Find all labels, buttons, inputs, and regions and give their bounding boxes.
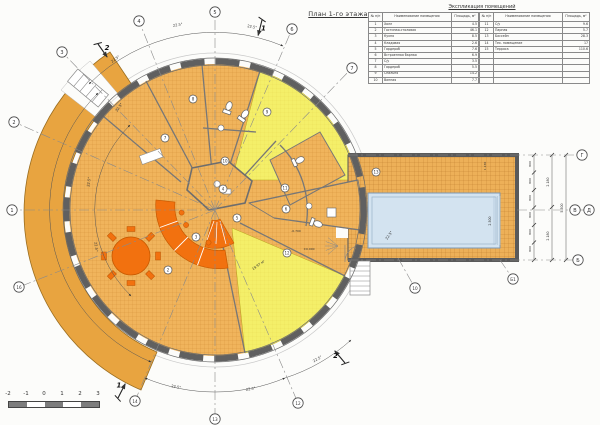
room-number: 5 <box>236 216 239 221</box>
dim-label: 22.5° <box>246 386 257 392</box>
scale-label: 1 <box>60 391 64 397</box>
axis-label: 4 <box>137 19 140 25</box>
schedule-cell: 10 <box>369 77 383 83</box>
axis-label: 13 <box>212 417 218 422</box>
axis-label: Г <box>580 153 583 159</box>
section-mark-number: 2 <box>105 44 110 52</box>
room-number: 4 <box>222 187 225 192</box>
scale-segment <box>45 402 63 407</box>
room-number: 3 <box>195 235 198 240</box>
schedule-header: № п/п <box>369 13 383 22</box>
axis-label: 14 <box>132 399 138 404</box>
dim-label: 1.130 <box>483 162 487 171</box>
axis-label: 16 <box>16 285 22 290</box>
table-row-empty <box>480 77 590 83</box>
dim-label: ±0.000 <box>303 247 314 251</box>
scale-label: -2 <box>5 391 10 397</box>
dim-label: 2.500 <box>488 216 492 225</box>
scale-segment <box>9 402 27 407</box>
axis-label: 12 <box>295 401 301 406</box>
section-mark-number: 2 <box>333 352 338 360</box>
schedule-header: Площадь, м² <box>452 13 479 22</box>
schedule-cell <box>494 77 563 83</box>
drawing-sheet: 12345671012131416ГВДББ1 2345678910111213… <box>0 0 600 425</box>
schedule-cell: 7.7 <box>452 77 479 83</box>
schedule-caption: Экспликация помещений <box>368 4 596 10</box>
axis-label: 6 <box>290 27 293 33</box>
section-mark-number: 1 <box>117 381 122 389</box>
room-number: 12 <box>284 251 290 256</box>
room-schedule: Экспликация помещений № п/пНаименование … <box>368 4 596 84</box>
room-number: 9 <box>266 110 269 115</box>
section-mark: 2 <box>329 348 349 369</box>
sink <box>218 125 224 131</box>
scale-bar-labels: -2-10123 <box>8 391 108 399</box>
scale-label: 0 <box>42 391 46 397</box>
room-number: 6 <box>285 207 288 212</box>
dim-label: -0.700 <box>291 229 301 233</box>
axis-label: Б1 <box>510 277 516 282</box>
dim-label: 800 <box>528 229 532 235</box>
schedule-header: Наименование помещения <box>383 13 452 22</box>
dim-label: 2.180 <box>546 177 550 186</box>
dim-label: 2.180 <box>546 231 550 240</box>
room-number: 10 <box>222 159 228 164</box>
axis-label: В <box>573 208 577 214</box>
schedule-table-right: № п/пНаименование помещенияПлощадь, м²11… <box>479 12 590 84</box>
scale-label: -1 <box>23 391 28 397</box>
scale-bar-segments <box>8 401 100 408</box>
schedule-header: Площадь, м² <box>563 13 590 22</box>
dim-label: 22.5° <box>171 384 182 390</box>
schedule-header: № п/п <box>480 13 494 22</box>
room-number: 7 <box>164 136 167 141</box>
scale-bar: -2-10123 <box>8 391 108 415</box>
room-number: 8 <box>192 97 195 102</box>
dim-label: 800 <box>528 195 532 201</box>
room-number: 2 <box>167 268 170 273</box>
dim-label: 800 <box>528 212 532 218</box>
scale-label: 2 <box>78 391 82 397</box>
dim-label: 5.500 <box>560 203 564 212</box>
schedule-table-left: № п/пНаименование помещенияПлощадь, м²1Х… <box>368 12 479 84</box>
schedule-cell: Ванная <box>383 77 452 83</box>
sink <box>306 203 312 209</box>
dim-label: 800 <box>528 246 532 252</box>
axis-label: 10 <box>412 286 418 291</box>
axis-label: 5 <box>213 10 216 16</box>
scale-segment <box>81 402 99 407</box>
room-number: 13 <box>373 170 379 175</box>
axis-label: 1 <box>10 208 13 214</box>
dim-label: 22.5° <box>173 22 184 28</box>
axis-label: Б <box>576 258 580 264</box>
axis-label: 3 <box>60 50 63 56</box>
room-number: 11 <box>282 186 288 191</box>
axis-label: 2 <box>12 120 15 126</box>
scale-segment <box>63 402 81 407</box>
washer <box>327 208 336 217</box>
axis-label: 7 <box>350 66 353 72</box>
axis-label: Д <box>587 208 591 214</box>
dim-label: 800 <box>528 178 532 184</box>
dim-label: 800 <box>528 161 532 167</box>
schedule-header: Наименование помещения <box>494 13 563 22</box>
section-mark-number: 1 <box>261 25 266 33</box>
scale-label: 3 <box>96 391 100 397</box>
scale-segment <box>27 402 45 407</box>
schedule-cell <box>563 77 590 83</box>
table-row: 10Ванная7.7 <box>369 77 479 83</box>
schedule-cell <box>480 77 494 83</box>
dim-label: 22.5° <box>247 24 258 30</box>
